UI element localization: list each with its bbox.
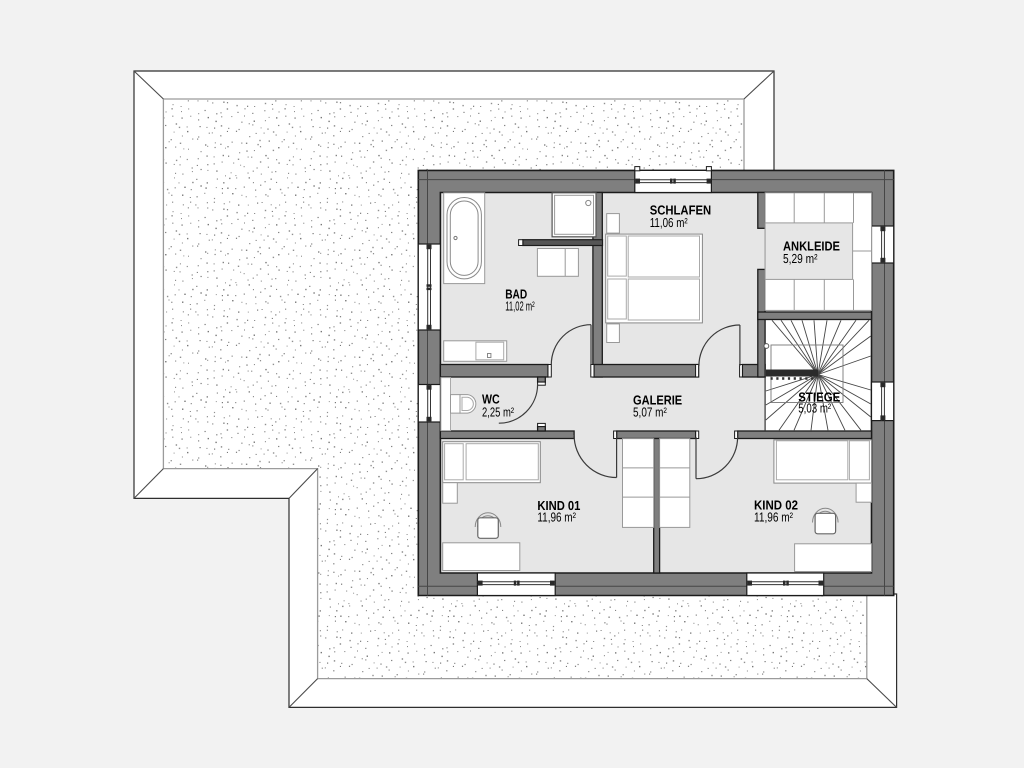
svg-text:11,96 m²: 11,96 m² (537, 510, 576, 525)
svg-text:2,25 m²: 2,25 m² (482, 405, 514, 420)
svg-text:11,96 m²: 11,96 m² (754, 510, 794, 525)
svg-text:11,06 m²: 11,06 m² (650, 215, 689, 230)
svg-text:5,29 m²: 5,29 m² (783, 251, 818, 266)
svg-text:5,03 m²: 5,03 m² (798, 401, 831, 416)
svg-text:5,07 m²: 5,07 m² (633, 405, 667, 420)
svg-text:11,02 m²: 11,02 m² (505, 299, 535, 314)
